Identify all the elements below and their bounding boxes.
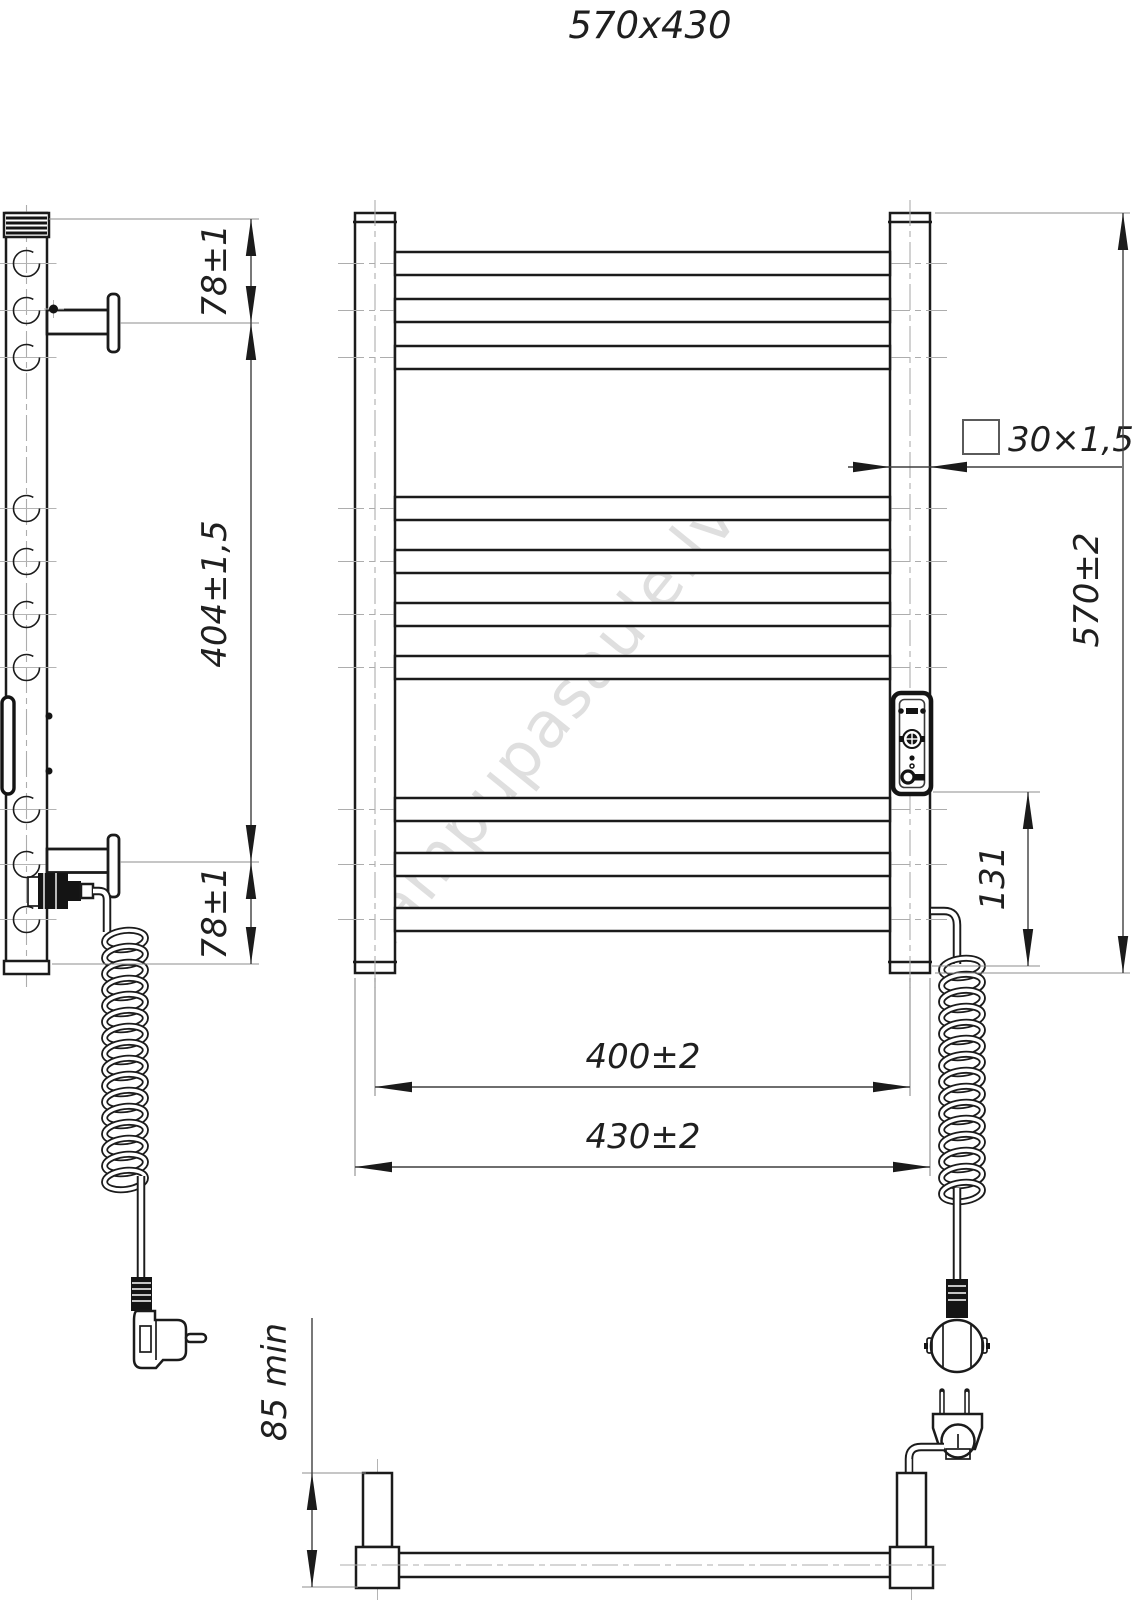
left-foot: [356, 1459, 399, 1600]
bottom-rail: [340, 1553, 946, 1577]
side-bottom-cap: [4, 961, 49, 974]
dim-inner-width: 400±2: [585, 1037, 700, 1077]
plug-pin: [186, 1334, 206, 1342]
dim-controller-offset: 131: [973, 846, 1013, 911]
cable-left: [93, 891, 107, 932]
controller-key-icon: [902, 771, 914, 783]
right-foot: [890, 1459, 933, 1600]
dim-tube-profile: 30×1,5: [1008, 420, 1132, 460]
side-top-cap: [4, 213, 49, 237]
dimension-controller-offset: 131: [932, 792, 1040, 966]
bracket-screw-icon: [49, 305, 58, 314]
drawing-title: 570x430: [568, 4, 731, 47]
controller-box: [893, 693, 931, 794]
square-symbol-icon: [963, 420, 999, 454]
power-plug-end-icon: [924, 1279, 990, 1372]
coiled-cable-right: [940, 956, 983, 1204]
dim-outer-width: 430±2: [585, 1117, 700, 1157]
coiled-cable-left: [103, 928, 146, 1192]
dim-wall-clearance: 85 min: [255, 1323, 295, 1441]
dim-side-span: 404±1,5: [195, 520, 235, 667]
bottom-view: 85 min: [255, 1318, 982, 1600]
dim-side-top-offset: 78±1: [195, 224, 235, 317]
dimension-widths: 400±2 430±2: [355, 978, 930, 1176]
dimension-wall-clearance: 85 min: [255, 1318, 366, 1587]
dim-side-bottom-offset: 78±1: [195, 866, 235, 959]
drawing-page: 570x430 lampupasaule.lv: [0, 0, 1132, 1600]
dim-height: 570±2: [1067, 532, 1107, 647]
wall-bracket-top: [44, 294, 119, 352]
power-plug-icon: [131, 1277, 206, 1368]
technical-drawing: 570x430 lampupasaule.lv: [0, 0, 1132, 1600]
cable-bottom-elbow: [909, 1447, 944, 1475]
dimension-height: 570±2: [935, 213, 1130, 973]
side-view: 78±1 404±1,5 78±1: [0, 205, 259, 1368]
